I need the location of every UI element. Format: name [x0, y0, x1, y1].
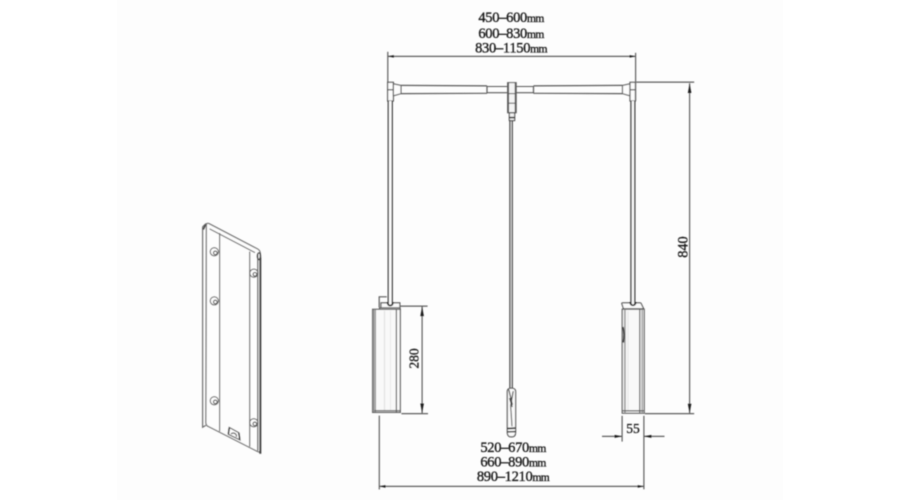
svg-text:600–830mm: 600–830mm	[478, 26, 544, 42]
svg-text:890–1210mm: 890–1210mm	[477, 469, 550, 485]
svg-text:55: 55	[626, 421, 640, 436]
svg-text:840: 840	[676, 236, 692, 257]
svg-text:280: 280	[407, 348, 422, 369]
svg-text:450–600mm: 450–600mm	[478, 10, 544, 26]
svg-text:520–670mm: 520–670mm	[480, 440, 546, 456]
svg-text:830–1150mm: 830–1150mm	[475, 40, 547, 56]
